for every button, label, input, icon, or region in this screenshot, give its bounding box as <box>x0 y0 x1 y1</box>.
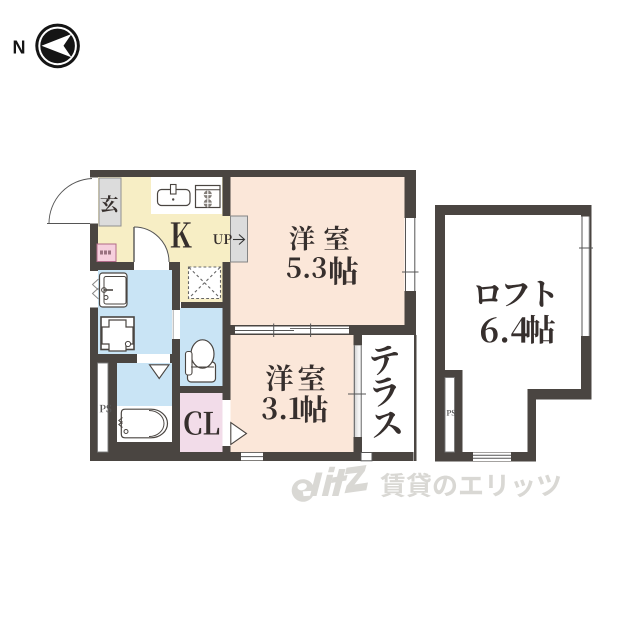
svg-text:N: N <box>13 38 26 58</box>
